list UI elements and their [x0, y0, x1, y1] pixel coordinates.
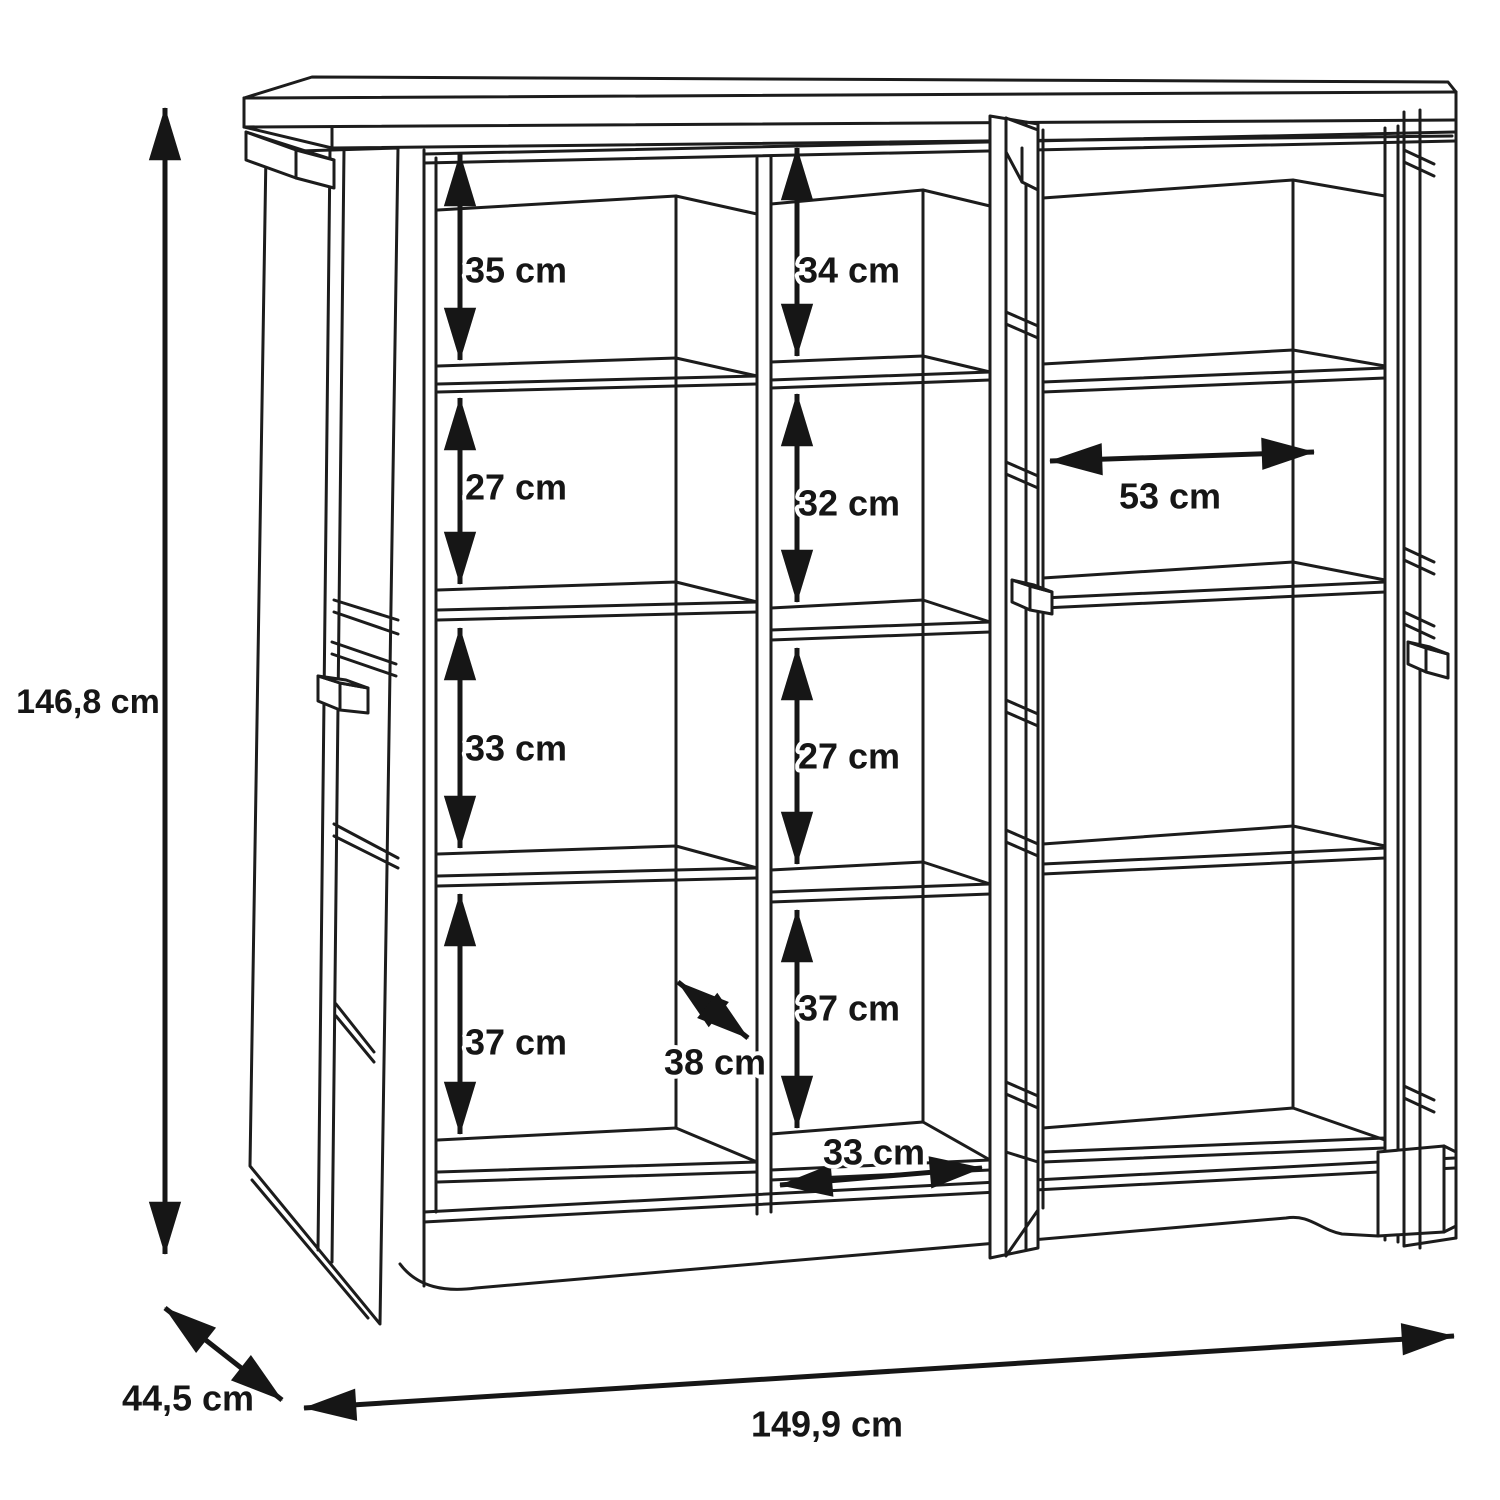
right-door — [1404, 110, 1456, 1248]
width-dimension-arrow — [304, 1336, 1454, 1408]
middle-shelf1-label: 34 cm — [798, 250, 900, 291]
left-shelf1-label: 35 cm — [465, 250, 567, 291]
right-foot — [1378, 1146, 1444, 1236]
cabinet-dimension-diagram: 35 cm 27 cm 33 cm 37 cm 34 cm 32 cm 27 c… — [0, 0, 1500, 1500]
overall-width-label: 149,9 cm — [751, 1404, 903, 1445]
left-shelf4-label: 37 cm — [465, 1022, 567, 1063]
inner-bottom-width-label: 33 cm — [823, 1132, 925, 1173]
inner-depth-label: 38 cm — [664, 1042, 766, 1083]
left-shelf2-label: 27 cm — [465, 467, 567, 508]
right-width-arrow — [1050, 452, 1314, 461]
left-shelf3-label: 33 cm — [465, 728, 567, 769]
right-width-label: 53 cm — [1119, 476, 1221, 517]
inner-depth-arrow — [678, 982, 748, 1038]
middle-shelf3-label: 27 cm — [798, 736, 900, 777]
overall-depth-label: 44,5 cm — [122, 1378, 254, 1419]
plinth — [400, 120, 1456, 1289]
left-open-door — [246, 132, 398, 1324]
right-door-handle — [1408, 642, 1448, 678]
right-section-shelves — [1043, 350, 1385, 1162]
overall-height-label: 146,8 cm — [16, 683, 160, 721]
middle-shelf4-label: 37 cm — [798, 988, 900, 1029]
middle-shelf2-label: 32 cm — [798, 483, 900, 524]
